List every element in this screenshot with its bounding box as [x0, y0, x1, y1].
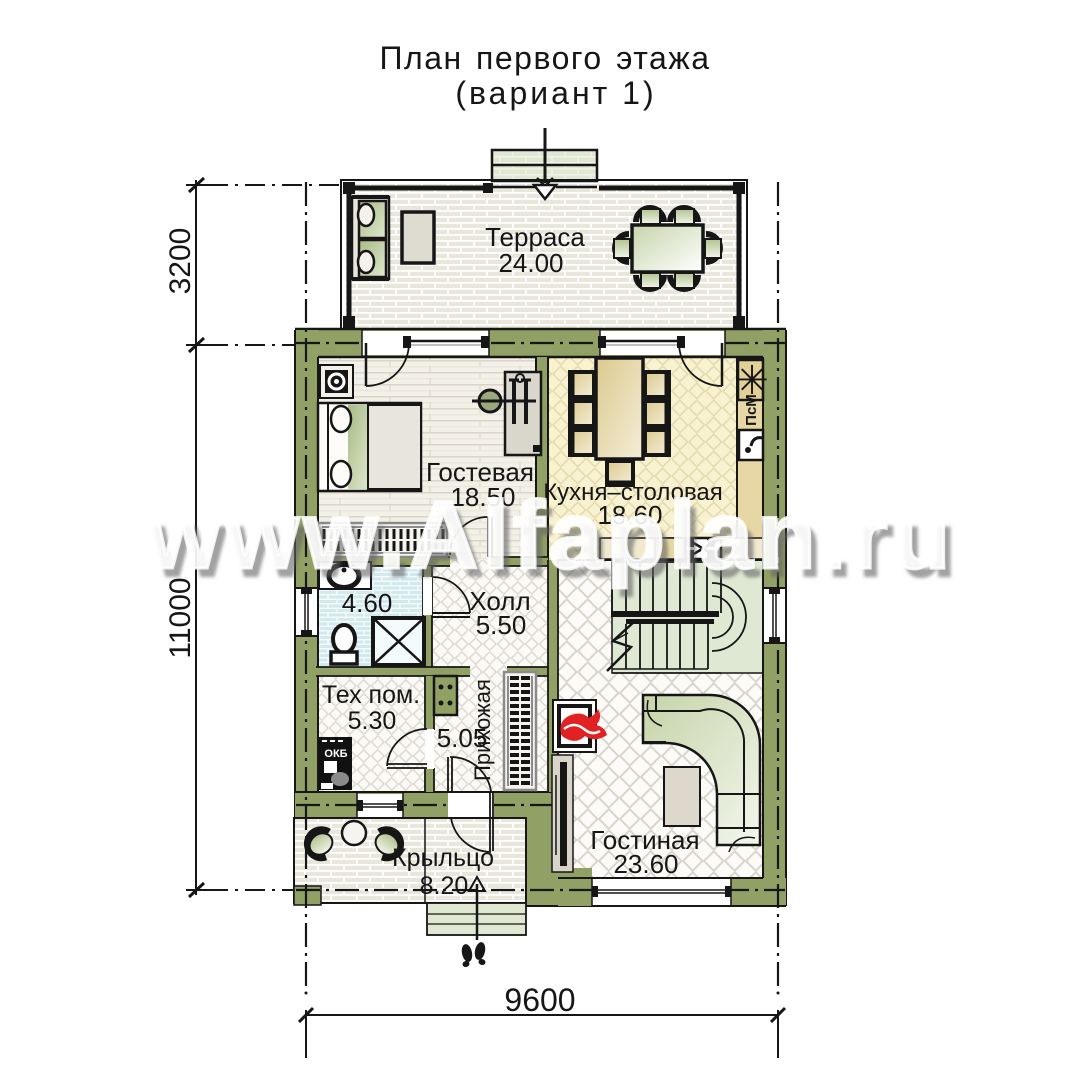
- svg-text:Тех пом.: Тех пом.: [322, 681, 420, 709]
- svg-text:Крыльцо: Крыльцо: [392, 844, 494, 872]
- svg-text:5.50: 5.50: [476, 610, 527, 640]
- svg-text:9600: 9600: [504, 982, 575, 1018]
- svg-text:5.30: 5.30: [348, 707, 397, 735]
- svg-text:План первого этажа: План первого этажа: [380, 40, 711, 76]
- svg-text:3200: 3200: [164, 228, 197, 295]
- svg-text:4.60: 4.60: [342, 588, 393, 618]
- svg-text:8.20: 8.20: [420, 872, 469, 900]
- svg-text:ОКБ: ОКБ: [324, 748, 347, 760]
- svg-text:23.60: 23.60: [613, 849, 678, 879]
- svg-text:(вариант 1): (вариант 1): [455, 75, 656, 111]
- svg-text:ПсМ: ПсМ: [743, 394, 760, 426]
- svg-text:5.05: 5.05: [437, 723, 488, 753]
- svg-text:24.00: 24.00: [498, 248, 563, 278]
